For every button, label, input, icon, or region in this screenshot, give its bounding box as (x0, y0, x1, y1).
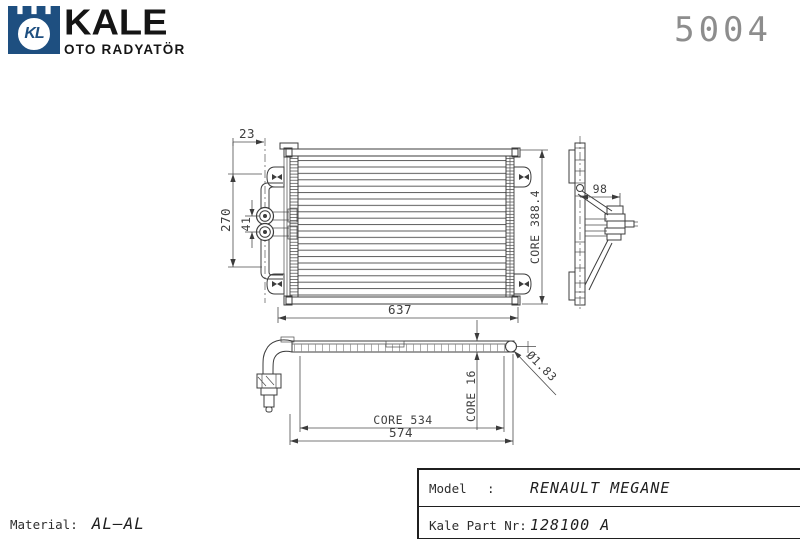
dim-pin-diameter-label: Ø1.83 (524, 348, 560, 384)
dim-overall-width: 637 (278, 302, 518, 323)
pin-diameter-callout: Ø1.83 (514, 348, 560, 395)
dim-pipe-spacing: 41 (239, 200, 259, 248)
part-number-label: Kale Part Nr: (429, 518, 527, 533)
spec-row-model: Model : RENAULT MEGANE (419, 470, 800, 507)
dim-bottom-overall-label: 574 (389, 425, 413, 440)
part-number-value: 128100 A (530, 516, 610, 534)
technical-drawing: 23 270 41 637 (0, 0, 800, 536)
side-fitting (605, 206, 638, 240)
model-value: RENAULT MEGANE (530, 479, 670, 497)
dim-pipe-spacing-label: 41 (239, 217, 253, 232)
dim-pipe-offset-label: 23 (239, 126, 255, 141)
dim-bottom-overall: 574 (290, 354, 513, 445)
material-value: AL–AL (92, 514, 145, 533)
bottom-view: Ø1.83 CORE 16 (257, 320, 560, 445)
dim-pipe-offset: 23 (233, 126, 264, 146)
dim-core-thickness-label: CORE 16 (464, 370, 478, 422)
dim-overall-width-label: 637 (388, 302, 412, 317)
model-separator: : (487, 481, 495, 496)
front-view: 23 270 41 637 (218, 126, 548, 323)
bottom-pipe (257, 337, 294, 412)
spec-row-part-number: Kale Part Nr: 128100 A (419, 507, 800, 543)
material-line: Material: AL–AL (10, 514, 145, 533)
dim-core-height: CORE 388.4 (520, 150, 548, 304)
dim-core-thickness: CORE 16 (464, 320, 480, 430)
dim-core-height-label: CORE 388.4 (528, 190, 542, 264)
side-view: 98 (569, 136, 638, 312)
dim-bracket-span: 270 (218, 142, 262, 267)
spec-table: Model : RENAULT MEGANE Kale Part Nr: 128… (417, 468, 800, 539)
model-label: Model (429, 481, 467, 496)
dim-depth-label: 98 (593, 182, 608, 196)
dim-bracket-span-label: 270 (218, 208, 233, 232)
material-label: Material: (10, 517, 78, 532)
